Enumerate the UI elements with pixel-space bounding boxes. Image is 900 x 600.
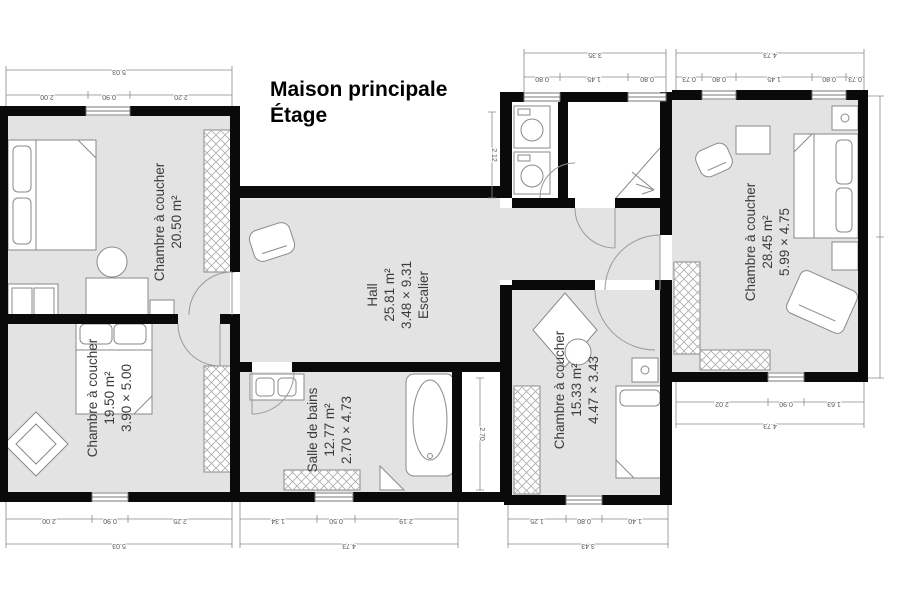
dimension-chain-top-middle: 0.80 1.45 0.80 3.35 bbox=[524, 49, 666, 92]
window-icon bbox=[768, 373, 804, 381]
window-icon bbox=[628, 93, 666, 101]
room-dims: 4.47 × 3.43 bbox=[586, 356, 601, 424]
room-dims: 2.70 × 4.73 bbox=[339, 396, 354, 464]
room-name: Chambre à coucher bbox=[743, 182, 758, 301]
room-name: Salle de bains bbox=[305, 387, 320, 472]
dim-label: 2.19 bbox=[399, 517, 413, 524]
room-name: Chambre à coucher bbox=[152, 162, 167, 281]
dim-label: 0.80 bbox=[577, 517, 591, 524]
floor-plan-page: 2.00 0.90 2.20 5.03 0.80 1.45 0.80 3.35 … bbox=[0, 0, 900, 600]
dimension-chain-top-right: 0.73 0.80 1.45 0.80 0.73 4.73 bbox=[676, 49, 864, 90]
side-table-icon bbox=[736, 126, 770, 154]
dim-label: 0.80 bbox=[822, 75, 836, 82]
room-dims: 3.90 × 5.00 bbox=[119, 364, 134, 432]
dim-label: 0.73 bbox=[848, 75, 862, 82]
room-area: 15.33 m² bbox=[569, 363, 584, 417]
room-area: 20.50 m² bbox=[169, 195, 184, 249]
dim-label: 0.80 bbox=[535, 75, 549, 82]
window-icon bbox=[702, 91, 736, 99]
wardrobe-icon bbox=[204, 130, 234, 272]
dimension-chain-bottom-middle: 1.34 0.50 2.19 4.73 bbox=[240, 502, 458, 549]
bathtub-icon bbox=[406, 374, 454, 476]
room-dims: 5.99 × 4.75 bbox=[777, 208, 792, 276]
dimension-chain-top-left: 2.00 0.90 2.20 5.03 bbox=[6, 66, 232, 106]
dim-label: 3.43 bbox=[581, 542, 595, 549]
dim-label: 0.80 bbox=[640, 75, 654, 82]
dryer-icon bbox=[514, 152, 550, 194]
title-line-1: Maison principale bbox=[270, 78, 447, 101]
double-bed-icon bbox=[794, 134, 858, 238]
washing-machine-icon bbox=[514, 106, 550, 148]
dim-label: 0.50 bbox=[329, 517, 343, 524]
dim-label: 1.25 bbox=[530, 517, 544, 524]
plan-title: Maison principale Étage bbox=[270, 78, 447, 127]
dim-label: 5.03 bbox=[112, 542, 126, 549]
utility-room-fixtures bbox=[514, 106, 660, 198]
dim-label: 2.02 bbox=[715, 400, 729, 407]
room-area: 19.50 m² bbox=[102, 371, 117, 425]
dim-label: 2.20 bbox=[174, 93, 188, 100]
dimension-vertical-hall: 2.12 bbox=[488, 112, 497, 198]
room-area: 28.45 m² bbox=[760, 215, 775, 269]
dimension-chain-bottom-center: 1.25 0.80 1.40 3.43 bbox=[508, 505, 668, 549]
dim-label: 4.73 bbox=[763, 422, 777, 429]
window-icon bbox=[92, 493, 128, 501]
shelf-icon bbox=[700, 350, 770, 370]
dim-label: 1.40 bbox=[628, 517, 642, 524]
dim-label: 2.70 bbox=[478, 427, 485, 441]
window-icon bbox=[812, 91, 846, 99]
floor-plan-svg: 2.00 0.90 2.20 5.03 0.80 1.45 0.80 3.35 … bbox=[0, 0, 900, 600]
dimension-chain-bottom-left: 2.00 0.90 2.25 5.03 bbox=[6, 502, 232, 549]
dim-label: 2.25 bbox=[173, 517, 187, 524]
dim-label: 0.90 bbox=[779, 400, 793, 407]
double-bed-icon bbox=[8, 140, 96, 250]
window-icon bbox=[524, 93, 560, 101]
room-name: Hall bbox=[365, 283, 380, 306]
stair-label: Escalier bbox=[416, 270, 431, 319]
dim-label: 4.73 bbox=[342, 542, 356, 549]
room-name: Chambre à coucher bbox=[552, 330, 567, 449]
room-name: Chambre à coucher bbox=[85, 338, 100, 457]
dimension-chain-right-edge bbox=[868, 96, 884, 378]
dim-label: 0.90 bbox=[102, 93, 116, 100]
window-icon bbox=[86, 107, 130, 115]
dim-label: 5.03 bbox=[112, 68, 126, 75]
dimension-chain-right-bottom: 2.02 0.90 1.63 4.73 bbox=[676, 382, 864, 429]
single-bed-icon bbox=[616, 386, 664, 478]
dim-label: 0.80 bbox=[712, 75, 726, 82]
wardrobe-icon bbox=[204, 366, 234, 472]
dim-label: 2.00 bbox=[42, 517, 56, 524]
window-icon bbox=[315, 493, 353, 501]
shower-icon bbox=[616, 148, 660, 198]
dresser-icon bbox=[832, 242, 858, 270]
wardrobe-icon bbox=[674, 262, 700, 354]
wardrobe-icon bbox=[514, 386, 540, 494]
dim-label: 0.90 bbox=[103, 517, 117, 524]
room-area: 12.77 m² bbox=[322, 403, 337, 457]
nightstand-icon bbox=[832, 106, 858, 130]
title-line-2: Étage bbox=[270, 104, 327, 127]
room-area: 25.81 m² bbox=[382, 268, 397, 322]
dim-label: 1.45 bbox=[587, 75, 601, 82]
dim-label: 4.73 bbox=[763, 51, 777, 58]
bath-shelf-icon bbox=[284, 470, 360, 490]
dim-label: 3.35 bbox=[588, 51, 602, 58]
nightstand-icon bbox=[632, 358, 658, 382]
dim-label: 1.45 bbox=[767, 75, 781, 82]
washbasin-icon bbox=[250, 374, 304, 400]
dim-label: 1.34 bbox=[271, 517, 285, 524]
dim-label: 2.12 bbox=[490, 148, 497, 162]
window-icon bbox=[566, 496, 602, 504]
dim-label: 0.73 bbox=[682, 75, 696, 82]
room-dims: 3.48 × 9.31 bbox=[399, 261, 414, 329]
dim-label: 1.63 bbox=[827, 400, 841, 407]
dim-label: 2.00 bbox=[40, 93, 54, 100]
